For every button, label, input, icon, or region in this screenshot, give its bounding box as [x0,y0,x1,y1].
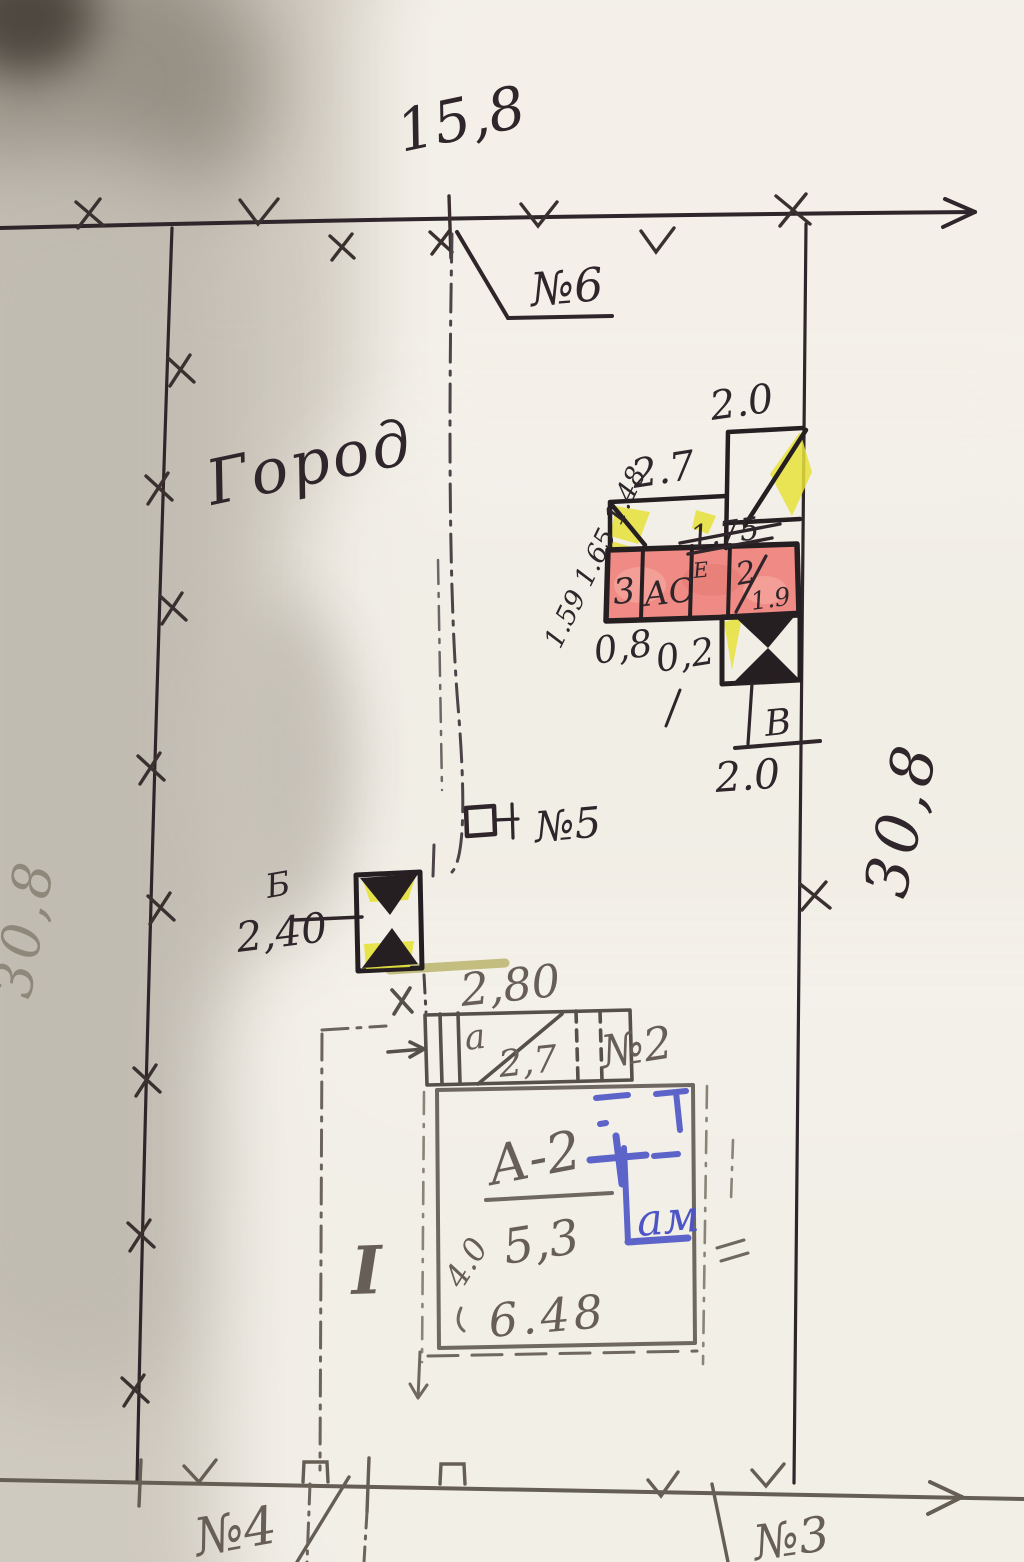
house-block: А-2 5,3 4.0 6.48 ам [410,1085,748,1398]
blue-stem [624,1148,628,1242]
cell2-sup-label: Е [691,558,710,584]
right-depth-dim: 30,8 [851,734,952,903]
gate-width-dim: 2,40 [232,903,329,962]
boundary-bottom-line [0,1480,1024,1499]
plan-drawing: 15,8 №6 Город 30,8 30,8 [0,0,1024,1562]
cell1-label: 3 [611,571,637,613]
cell2-label: АС [640,570,696,614]
blue-dashes [596,1091,686,1156]
section-mark: I [348,1231,386,1310]
shed-dim-inner: 2,7 [495,1037,559,1086]
left-depth-dim: 30,8 [0,853,67,1002]
boundary-right-line [794,224,806,1483]
tick-x-mark [392,988,412,1014]
house-blue-note: ам [635,1191,702,1247]
shed-letter: а [462,1017,488,1059]
dim-below-left: 0,8 [591,621,656,673]
outbuilding-block: 2.0 2.7 1.75 1.59 1.65 1.48 3 АС Е 2 1.9… [538,375,820,802]
hourglass-icon [734,612,798,648]
parcel4-label: №4 [188,1495,281,1562]
parcel2-label: №2 [595,1015,676,1079]
house-area-note: 6.48 [486,1284,609,1348]
shed-inner-walls [440,1013,460,1084]
marker-square-icon [466,806,495,836]
tick-stroke [458,1308,464,1331]
house-diagonal-note: 4.0 [436,1231,496,1295]
shed-leader-arrow [388,1042,424,1057]
shed-dim-top: 2,80 [457,954,563,1017]
tick-stroke [666,690,680,726]
dim-below-right: 0,2 [653,629,718,681]
cell4-bottom-label: 1.9 [749,582,793,616]
well-width-dim: 2.0 [712,750,781,803]
parcel3-label: №3 [748,1506,833,1562]
gate-marker: Б 2,40 [232,863,505,971]
parallel-mark [717,1240,748,1261]
gate-letter: Б [262,863,294,906]
blue-cross-icon [590,1136,646,1184]
parcel6-label: №6 [526,257,605,317]
outbuilding-dim-top: 2.0 [706,375,776,430]
house-label: А-2 [479,1118,587,1198]
hourglass-icon [734,648,798,682]
marker-ticks [495,804,518,838]
boundary-top-line [0,212,975,228]
street-name: Город [199,405,420,520]
shed-block: 2,80 а 2,7 №2 [388,954,676,1086]
parcel6-callout: №6 [457,232,612,318]
top-width-dim: 15,8 [391,72,531,165]
house-lower-dashes [428,1351,697,1356]
well-letter: В [762,701,794,745]
scanned-plan-photo: 15,8 №6 Город 30,8 30,8 [0,0,1024,1562]
house-corner-tick [410,1352,427,1398]
parcel5-label: №5 [531,797,603,852]
boundary-left-line [137,228,172,1482]
shed-dashed-walls [576,1011,602,1081]
house-label-under: 5,3 [499,1209,583,1276]
parcel5-marker: №5 [466,797,603,852]
well-stem [748,684,752,744]
